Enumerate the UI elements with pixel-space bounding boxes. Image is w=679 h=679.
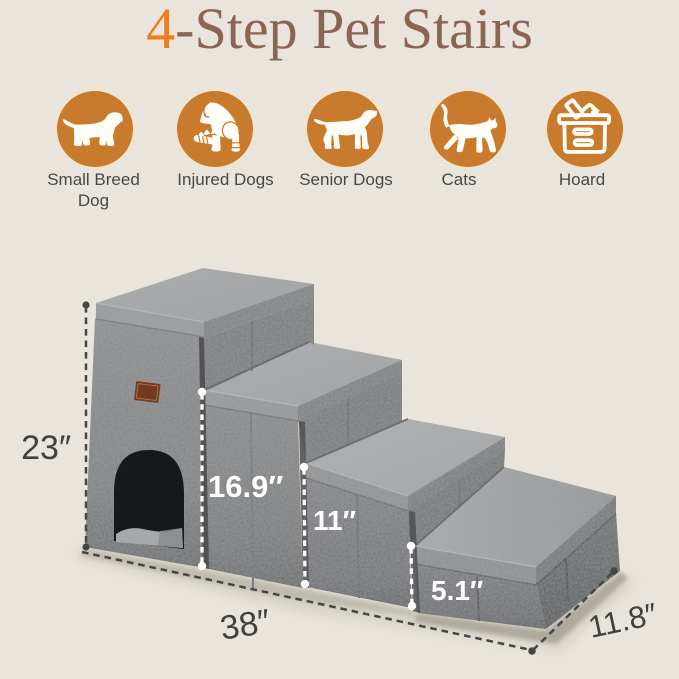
svg-text:5.1″: 5.1″ [431,575,483,606]
svg-text:38″: 38″ [218,602,273,647]
svg-text:23″: 23″ [21,429,71,467]
svg-text:16.9″: 16.9″ [208,469,283,504]
svg-text:11″: 11″ [313,505,356,536]
